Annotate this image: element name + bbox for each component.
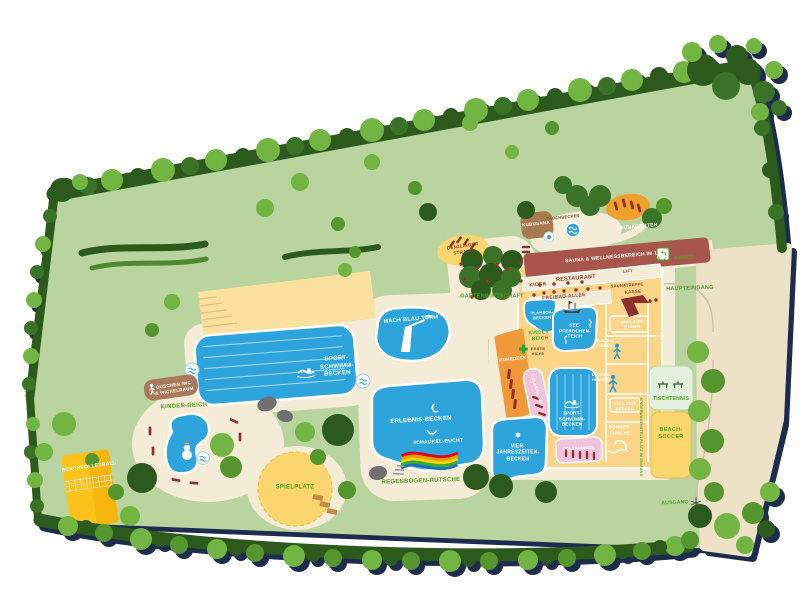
fountain-marker-icon bbox=[197, 452, 210, 465]
wheelchair-ramp-icon bbox=[657, 248, 669, 261]
sport-schwimm-becken-outdoor-pool bbox=[194, 324, 359, 406]
fountain-marker-icon bbox=[356, 374, 370, 388]
mach-blau-turm-pool bbox=[376, 307, 450, 361]
pool-facility-map: BEACHVOLLEYBALL DUSCHEN /WC & WICKELRAUM… bbox=[0, 0, 800, 596]
beach-soccer-area bbox=[651, 412, 691, 478]
vier-jahreszeiten-becken-pool bbox=[492, 417, 547, 480]
tischtennis-area bbox=[649, 366, 693, 410]
map-illustration bbox=[0, 0, 800, 596]
relaxhimmel-2-area bbox=[555, 437, 602, 463]
